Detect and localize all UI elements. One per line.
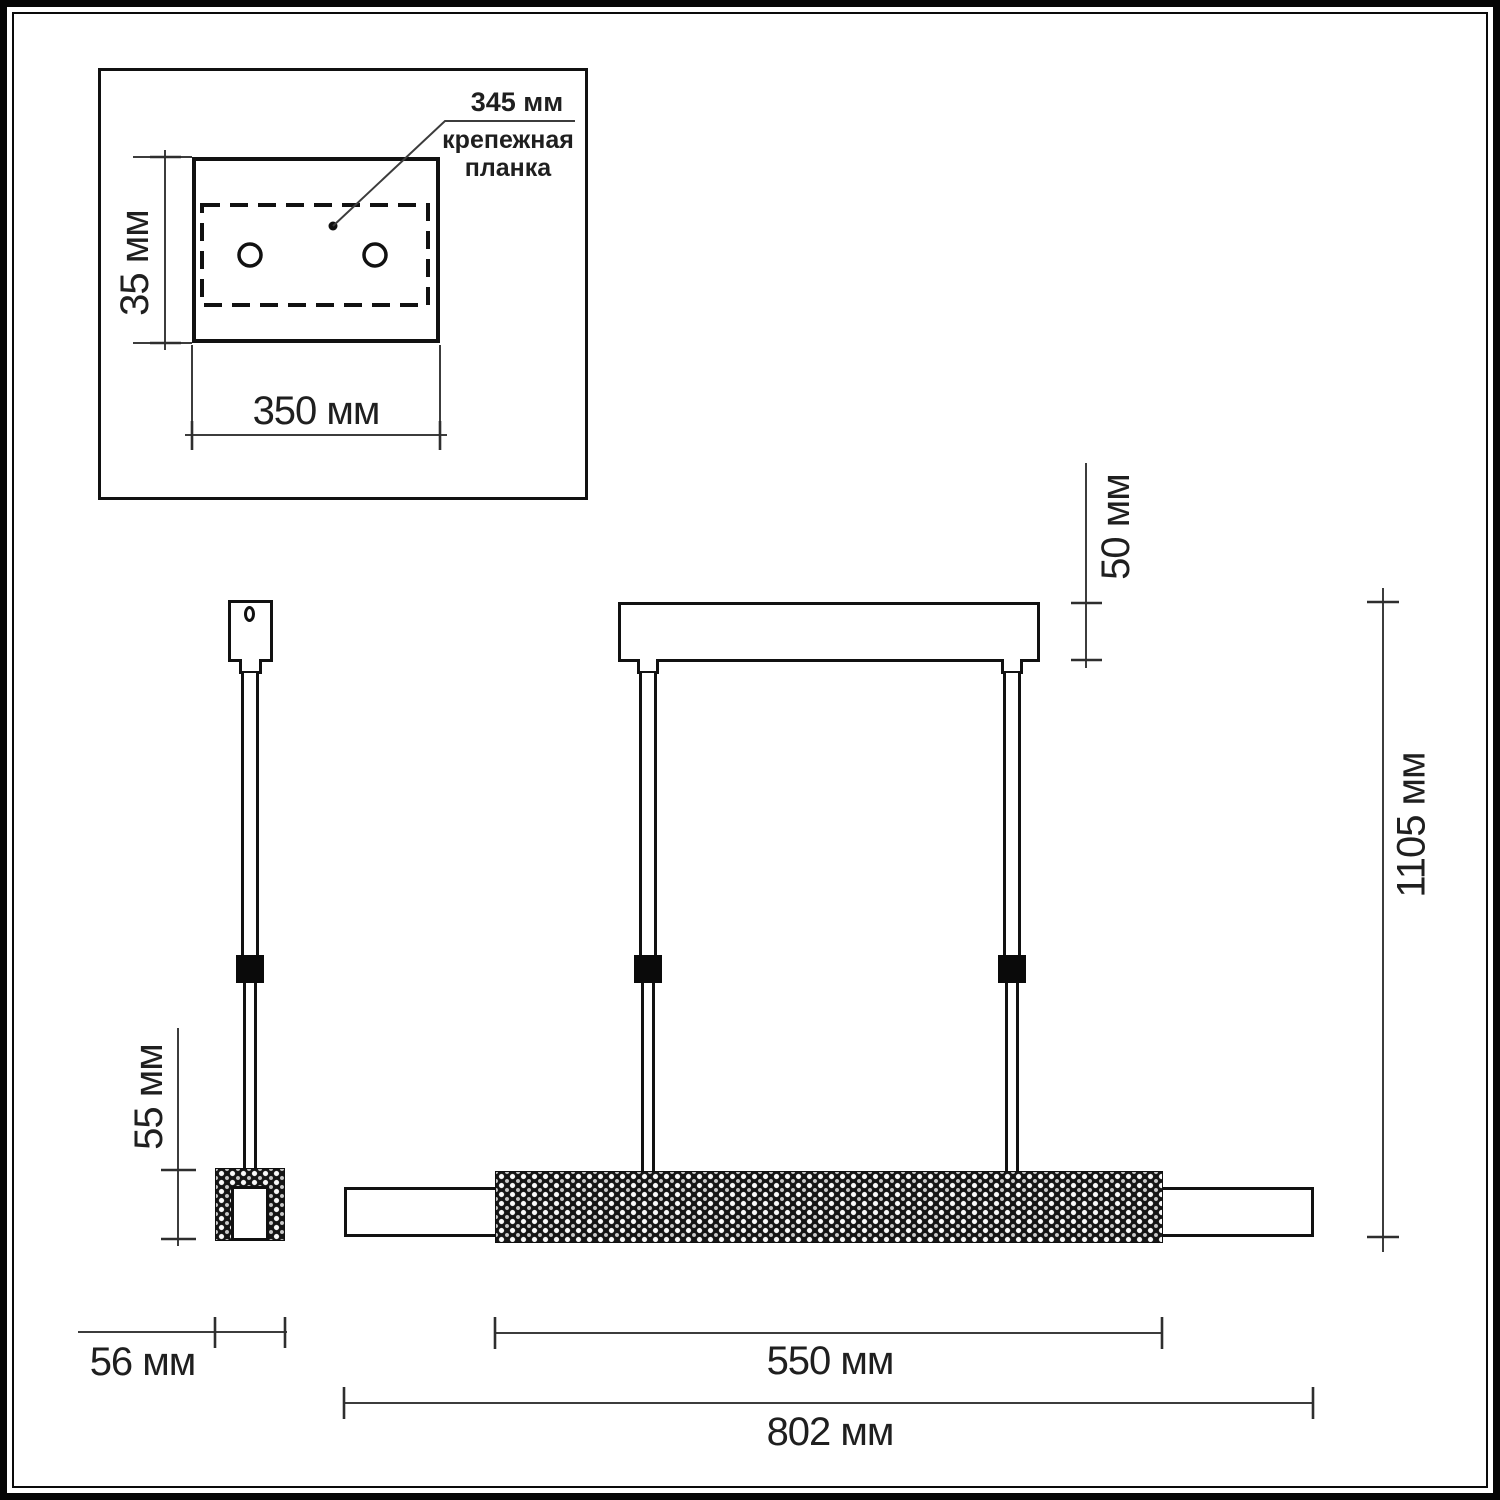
suspension-rod-upper-right [1003,673,1021,955]
label-overall-length: 802 мм [680,1411,980,1453]
label-plate-width: 350 мм [192,390,440,432]
rod-neck-right [1001,659,1023,674]
rod-neck-left [637,659,659,674]
suspension-rod-lower-right [1005,983,1019,1172]
mounting-plate-outline [192,157,440,343]
suspension-rod-lower-side [243,983,257,1172]
label-crystal-length: 550 мм [680,1340,980,1382]
cable-hole-icon [244,606,255,622]
label-canopy-height: 50 мм [1095,447,1137,607]
suspension-rod-upper-side [241,673,259,955]
label-overall-height: 1105 мм [1391,723,1433,928]
suspension-rod-lower-left [641,983,655,1172]
end-cap-opening [231,1186,269,1241]
suspension-rod-upper-left [639,673,657,955]
ceiling-canopy [618,602,1040,662]
label-mounting-bar-length: 345 мм [437,88,597,116]
label-mounting-bar-caption: крепежная планка [423,127,593,182]
rod-connector-side [236,955,264,983]
label-fixture-height: 55 мм [128,1017,170,1177]
label-plate-height: 35 мм [114,183,156,343]
label-fixture-width: 56 мм [65,1341,220,1383]
crystal-diffuser-band [495,1171,1163,1243]
rod-connector-right [998,955,1026,983]
technical-drawing: 345 мм крепежная планка 35 мм 350 мм 55 … [0,0,1500,1500]
rod-neck-side [239,659,262,674]
rod-connector-left [634,955,662,983]
